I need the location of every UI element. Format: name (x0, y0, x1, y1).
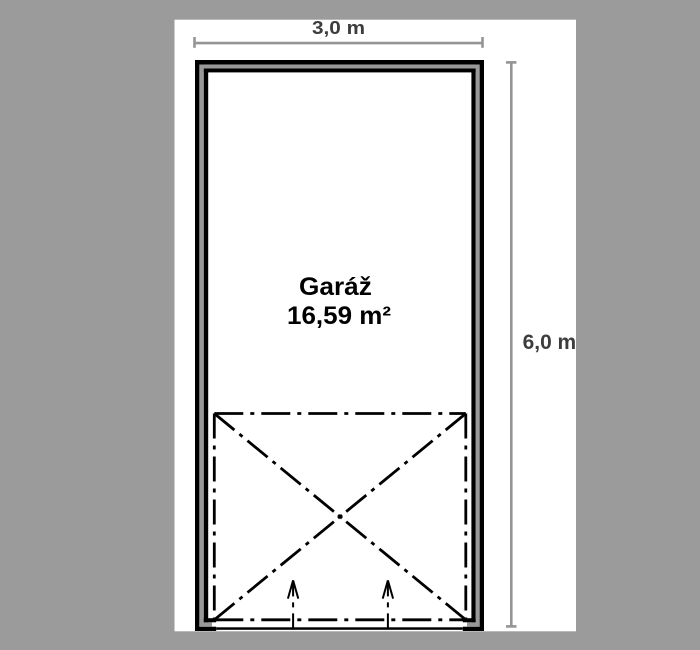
svg-text:6,0 m: 6,0 m (523, 330, 577, 354)
svg-text:16,59 m²: 16,59 m² (287, 302, 391, 330)
svg-text:3,0 m: 3,0 m (312, 17, 365, 38)
svg-text:Garáž: Garáž (299, 273, 372, 301)
